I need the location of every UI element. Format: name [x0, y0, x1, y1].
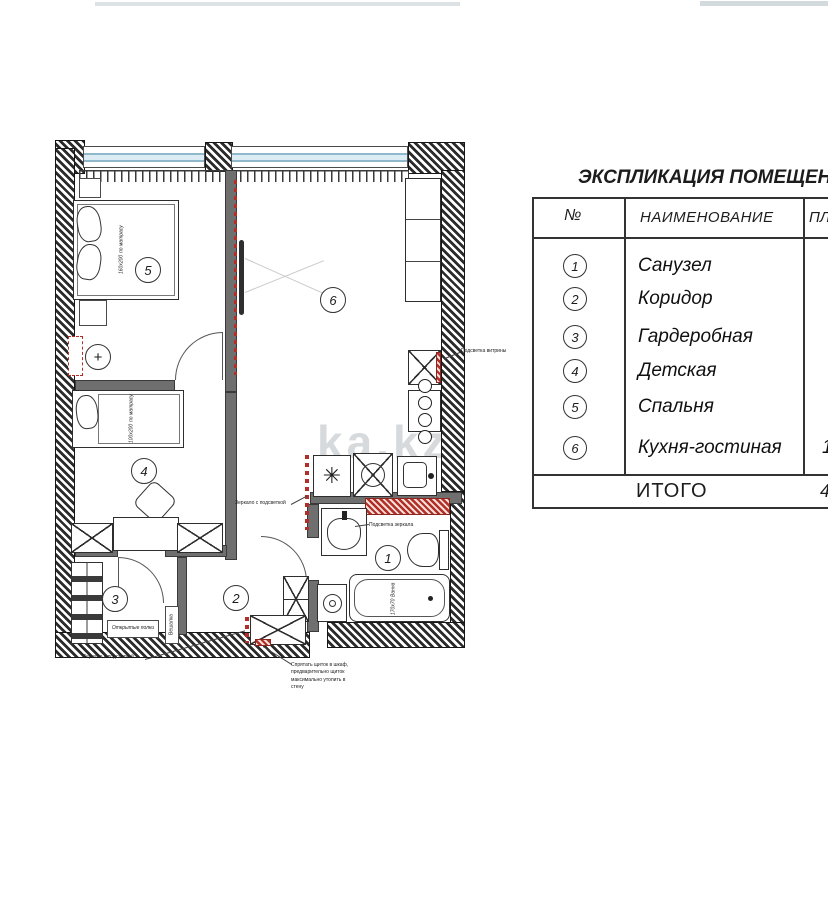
row-number-badge: 5 — [563, 395, 587, 419]
sink-bowl — [403, 462, 427, 488]
stove — [408, 390, 441, 432]
room-number-wardrobe: 3 — [102, 586, 128, 612]
burner — [418, 413, 432, 427]
scan-artifact-line — [95, 2, 460, 6]
column-header-num: № — [564, 207, 581, 225]
row-number-badge: 6 — [563, 436, 587, 460]
table-line-bottom — [532, 507, 828, 509]
row-number-badge: 1 — [563, 254, 587, 278]
room-number-corridor: 2 — [223, 585, 249, 611]
toilet-bowl — [407, 533, 439, 567]
scan-artifact-line — [700, 1, 828, 6]
shelf-divider — [406, 261, 440, 262]
curtain-symbol — [79, 170, 409, 182]
open-shelves-box: Открытые полки — [107, 620, 159, 638]
bed-master-size: 160х200 — [118, 255, 125, 274]
row-number: 3 — [571, 330, 578, 345]
tv-led-strip — [234, 180, 237, 375]
row-name: Кухня-гостиная — [638, 437, 782, 459]
column-header-area: ПЛОЩАДЬ — [809, 209, 828, 226]
row-number: 4 — [571, 364, 578, 379]
row-number-badge: 2 — [563, 287, 587, 311]
bath-size: 170х70 — [390, 599, 397, 615]
hanger-box: Вешалка — [165, 606, 179, 644]
bed-master-label: 160х200 по матрасу — [113, 210, 131, 290]
partition-kids-corridor — [225, 392, 237, 560]
washing-machine-dot — [329, 600, 336, 607]
wardrobe-kids-left — [71, 523, 113, 553]
row-name: Детская — [638, 360, 717, 382]
room-number-kitchen: 6 — [320, 287, 346, 313]
wall-bottom-bath — [327, 622, 465, 648]
tap-icon — [342, 511, 347, 520]
hanger-label: Вешалка — [168, 615, 175, 636]
room-number-text: 6 — [329, 293, 336, 308]
row-name: Санузел — [638, 255, 712, 277]
sink-circle — [361, 463, 385, 487]
room-number-text: 1 — [384, 551, 391, 566]
row-name: Спальня — [638, 396, 714, 418]
row-name: Коридор — [638, 288, 713, 310]
cabinet-divider — [284, 599, 308, 600]
sink-base-cabinet — [353, 453, 393, 497]
washing-machine — [317, 584, 347, 622]
bathtub: 170х70 Ванна — [349, 574, 450, 622]
table-line-top — [532, 197, 828, 199]
row-number: 6 — [571, 441, 578, 456]
table-row: 5 Спальня — [532, 395, 828, 421]
wall-top-pier — [205, 142, 233, 172]
display-cabinet-backlight — [436, 352, 441, 383]
washbasin — [321, 508, 367, 556]
window-bedroom — [83, 146, 205, 168]
floor-plan-page: { "header": { "title": "ЭКСПЛИКАЦИЯ ПОМЕ… — [0, 0, 828, 900]
mirror-backlit-kitchen-label: Зеркало с подсветкой — [235, 500, 295, 507]
room-number-bedroom: 5 — [135, 257, 161, 283]
table-row: 2 Коридор — [532, 287, 828, 313]
table-row: 4 Детская — [532, 359, 828, 385]
bath-name: Ванна — [390, 583, 397, 597]
total-value: 4 — [820, 481, 828, 502]
ceiling-light-icon: + — [85, 344, 111, 370]
row-number: 5 — [571, 400, 578, 415]
row-area: 1 — [822, 437, 828, 459]
nightstand — [79, 178, 101, 198]
bathtub-label: 170х70 Ванна — [386, 579, 402, 619]
desk — [113, 517, 179, 551]
explication-table: ЭКСПЛИКАЦИЯ ПОМЕЩЕНИЙ № НАИМЕНОВАНИЕ ПЛО… — [532, 165, 828, 510]
vitrine-light-label: Подсветка витрины — [461, 348, 531, 355]
table-row: 3 Гардеробная — [532, 325, 828, 351]
row-number-badge: 3 — [563, 325, 587, 349]
drain-icon — [428, 596, 433, 601]
table-border-left — [532, 197, 534, 509]
room-number-text: 2 — [232, 591, 239, 606]
row-number: 2 — [571, 292, 578, 307]
burner — [418, 379, 432, 393]
table-row: 1 Санузел — [532, 254, 828, 280]
table-row: 6 Кухня-гостиная 1 — [532, 436, 828, 462]
freezer-cabinet: ✳ — [313, 455, 351, 497]
row-number-badge: 4 — [563, 359, 587, 383]
row-name: Гардеробная — [638, 326, 753, 348]
room-number-kids: 4 — [131, 458, 157, 484]
toilet — [407, 530, 451, 572]
door-arc-bedroom — [175, 332, 223, 380]
room-number-text: 3 — [111, 592, 118, 607]
column-header-name: НАИМЕНОВАНИЕ — [640, 209, 774, 226]
toilet-tank — [439, 530, 449, 570]
room-number-text: 5 — [144, 263, 151, 278]
room-number-text: 4 — [140, 464, 147, 479]
bed-kids-label: 100х200 по матрасу — [123, 394, 141, 444]
shelf-divider — [406, 219, 440, 220]
mirror-backlit-bath — [365, 498, 450, 515]
open-shelves-label: Открытые полки — [112, 625, 154, 632]
floor-plan: ka.kz 160х200 по матрасу 5 + 6 П — [55, 140, 467, 718]
table-line-header — [532, 237, 828, 239]
row-number: 1 — [571, 259, 578, 274]
mirror-led-wardrobe — [245, 617, 249, 643]
bed-master-note: по матрасу — [118, 226, 125, 254]
faucet-icon — [428, 473, 434, 479]
room-number-bath: 1 — [375, 545, 401, 571]
light-plus-glyph: + — [94, 349, 103, 366]
mirror-light-label: Подсветка зеркала — [369, 522, 425, 529]
tv — [239, 240, 244, 315]
basin-bowl — [327, 518, 361, 550]
bed-kids-size: 100х200 — [128, 424, 135, 443]
bed-kids-note: по матрасу — [128, 395, 135, 423]
wall-right — [441, 170, 465, 492]
window-kitchen — [231, 146, 408, 168]
panel-note: Спрятать щиток в шкаф, предварительно щи… — [291, 662, 353, 691]
table-total-row: ИТОГО 4 — [532, 476, 828, 507]
total-label: ИТОГО — [636, 480, 708, 503]
wardrobe-shelves — [71, 562, 103, 644]
nightstand — [79, 300, 107, 326]
freezer-icon: ✳ — [323, 463, 341, 489]
mirror-backlit-bedroom — [68, 336, 83, 376]
burner — [418, 430, 432, 444]
table-title: ЭКСПЛИКАЦИЯ ПОМЕЩЕНИЙ — [578, 167, 828, 189]
kitchen-sink — [397, 456, 437, 496]
wardrobe-kids-right — [177, 523, 223, 553]
shelving-unit-kitchen — [405, 178, 441, 302]
mirror-led-kitchen — [305, 455, 309, 530]
burner — [418, 396, 432, 410]
mirror-backlit-wardrobe-label: Зеркало с подсветкой — [83, 654, 193, 661]
